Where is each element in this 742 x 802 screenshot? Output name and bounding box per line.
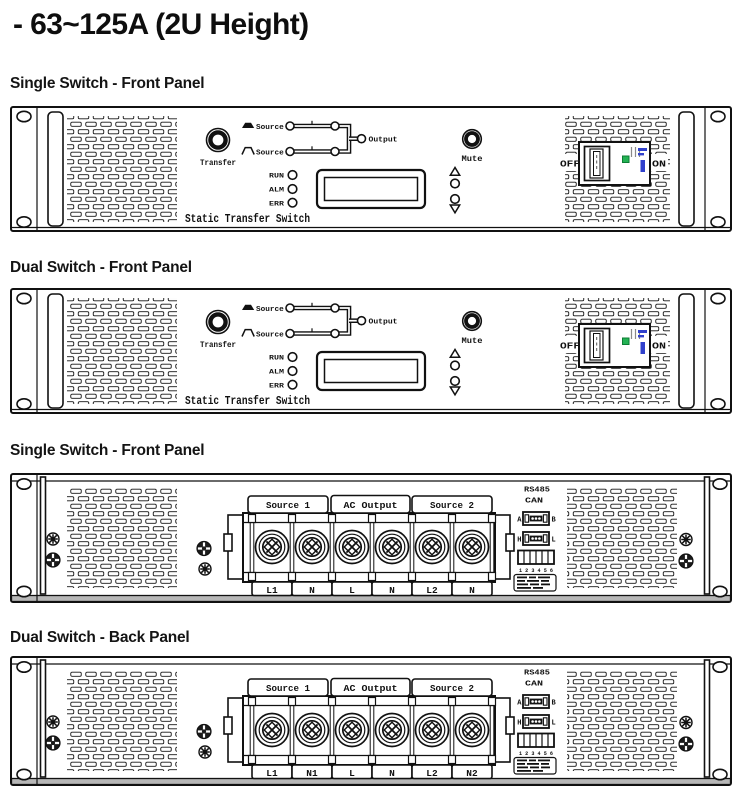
ear-hole (17, 662, 31, 672)
on-label: ON (652, 160, 666, 170)
mount-notch (224, 717, 232, 734)
mute-label: Mute (462, 337, 483, 346)
vent-grille-left (67, 116, 177, 222)
terminal-screw[interactable] (416, 714, 449, 747)
handle-bar-left (48, 294, 63, 408)
port-l-label: L (552, 720, 556, 728)
breaker-switch[interactable] (579, 324, 650, 367)
case-screw (46, 736, 60, 750)
edge-strip-right (705, 660, 710, 777)
handle-bar-right (679, 112, 694, 226)
err-led-label: ERR (269, 382, 285, 390)
run-led-label: RUN (269, 173, 284, 181)
rs485-connector[interactable] (523, 512, 549, 525)
ear-hole (17, 586, 31, 596)
bottom-rail (12, 779, 731, 785)
ear-hole (713, 769, 727, 779)
breaker-blue-bar (641, 160, 646, 172)
ear-hole (713, 662, 727, 672)
group-label: Source 2 (430, 500, 474, 511)
case-screw (197, 725, 211, 739)
can-connector[interactable] (523, 532, 549, 545)
dip-numbers: 1 2 3 4 5 6 (519, 567, 553, 574)
rs485-connector[interactable] (523, 695, 549, 708)
group-label: Source 1 (266, 500, 310, 511)
breaker-blue-mark (638, 153, 644, 155)
dip-legend (514, 575, 556, 592)
dip-numbers: 1 2 3 4 5 6 (519, 750, 553, 757)
ear-hole (713, 586, 727, 596)
ear-hole (17, 293, 31, 303)
terminal-label: N (389, 768, 395, 779)
dip-switch[interactable] (518, 551, 554, 565)
case-screw (680, 534, 692, 546)
terminal-screw[interactable] (336, 531, 369, 564)
vent-grille-left (67, 488, 177, 588)
vent-grille-right (567, 671, 677, 771)
ear-hole (711, 399, 725, 409)
panel-single-front: Transfer Source 1 Source 2 Output RUN AL… (10, 106, 732, 232)
can-label: CAN (525, 498, 543, 506)
port-h-label: H (517, 537, 521, 545)
section-label-dual-back: Dual Switch - Back Panel (10, 629, 190, 647)
group-label: AC Output (344, 500, 398, 511)
status-leds: RUN ALM ERR (269, 171, 297, 209)
edge-strip-right (705, 477, 710, 594)
case-screw (199, 563, 211, 575)
can-label: CAN (525, 681, 543, 689)
brand-label: Static Transfer Switch (185, 213, 310, 226)
terminal-screw[interactable] (456, 531, 489, 564)
terminal-screw[interactable] (456, 714, 489, 747)
alm-led (288, 367, 297, 376)
case-screw (679, 554, 693, 568)
run-led (288, 171, 297, 180)
breaker-green-indicator (623, 156, 630, 163)
breaker-blue-mark (638, 335, 644, 337)
group-label: Source 2 (430, 683, 474, 694)
case-screw (197, 542, 211, 556)
on-label: ON (652, 342, 666, 352)
alm-led-label: ALM (269, 369, 284, 377)
rs485-label: RS485 (524, 487, 551, 495)
section-label-single-back: Single Switch - Front Panel (10, 442, 204, 460)
terminal-screw[interactable] (336, 714, 369, 747)
breaker-green-indicator (623, 338, 630, 345)
terminal-label: N (389, 585, 395, 596)
group-label: Source 1 (266, 683, 310, 694)
ear-hole (711, 293, 725, 303)
bottom-rail (12, 596, 731, 602)
handle-bar-right (679, 294, 694, 408)
terminal-label: L1 (266, 585, 278, 596)
ear-hole (17, 479, 31, 489)
can-connector[interactable] (523, 715, 549, 728)
err-led-label: ERR (269, 200, 285, 208)
terminal-screw[interactable] (256, 714, 289, 747)
transfer-button[interactable] (207, 129, 230, 152)
vent-grille-left (67, 298, 177, 404)
err-led (288, 380, 297, 389)
mount-notch (506, 534, 514, 551)
terminal-block: Source 1 AC Output Source 2 L1 N L N L2 … (224, 496, 514, 596)
terminal-screw[interactable] (256, 531, 289, 564)
transfer-label: Transfer (200, 341, 236, 350)
run-led-label: RUN (269, 355, 284, 363)
dip-legend (514, 758, 556, 775)
round-button (451, 195, 460, 204)
terminal-label: N1 (306, 768, 318, 779)
terminal-screw[interactable] (376, 531, 409, 564)
ear-hole (17, 399, 31, 409)
terminal-label: N2 (466, 768, 478, 779)
mute-button[interactable] (463, 130, 482, 149)
terminal-labels: L1 N1 L N L2 N2 (252, 765, 492, 779)
section-label-dual-front: Dual Switch - Front Panel (10, 259, 192, 277)
rs485-label: RS485 (524, 670, 551, 678)
case-screw (46, 553, 60, 567)
terminal-screw[interactable] (376, 714, 409, 747)
dip-switch[interactable] (518, 734, 554, 748)
terminal-labels: L1 N L N L2 N (252, 582, 492, 596)
breaker-switch[interactable] (579, 142, 650, 185)
mute-label: Mute (462, 155, 483, 164)
terminal-label: L2 (426, 768, 438, 779)
mount-notch (506, 717, 514, 734)
off-label: OFF (560, 342, 580, 352)
terminal-screw[interactable] (296, 531, 329, 564)
ear-hole (17, 111, 31, 121)
terminal-label: L1 (266, 768, 278, 779)
ear-hole (17, 217, 31, 227)
terminal-label: N (309, 585, 315, 596)
output-label: Output (369, 319, 398, 327)
transfer-button[interactable] (207, 311, 230, 334)
terminal-screw[interactable] (416, 531, 449, 564)
vent-grille-left (67, 671, 177, 771)
terminal-label: N (469, 585, 475, 596)
run-led (288, 353, 297, 362)
breaker-blue-mark (638, 330, 647, 333)
round-button (451, 377, 460, 386)
ear-hole (711, 111, 725, 121)
alm-led (288, 185, 297, 194)
section-label-single-front: Single Switch - Front Panel (10, 75, 204, 93)
off-label: OFF (560, 160, 580, 170)
case-screw (199, 746, 211, 758)
edge-strip-left (41, 660, 46, 777)
lcd-screen (325, 178, 418, 201)
group-label: AC Output (344, 683, 398, 694)
panel-dual-front: Transfer Source 1 Source 2 Output RUN AL… (10, 288, 732, 414)
case-screw (680, 717, 692, 729)
terminal-label: L (349, 768, 355, 779)
breaker-blue-mark (638, 148, 647, 151)
terminal-label: L (349, 585, 355, 596)
round-button (451, 361, 460, 370)
ear-hole (711, 217, 725, 227)
case-screw (47, 716, 59, 728)
status-leds: RUN ALM ERR (269, 353, 297, 391)
page-title: - 63~125A (2U Height) (13, 8, 309, 42)
terminal-block: Source 1 AC Output Source 2 L1 N1 L N L2… (224, 679, 514, 779)
handle-bar-left (48, 112, 63, 226)
edge-strip-left (41, 477, 46, 594)
ear-hole (713, 479, 727, 489)
brand-label: Static Transfer Switch (185, 395, 310, 408)
panel-single-back: Source 1 AC Output Source 2 L1 N L N L2 … (10, 473, 732, 603)
case-screw (47, 533, 59, 545)
mute-button[interactable] (463, 312, 482, 331)
vent-grille-right (567, 488, 677, 588)
breaker-blue-bar (641, 342, 646, 354)
output-label: Output (369, 137, 398, 145)
err-led (288, 198, 297, 207)
port-h-label: H (517, 720, 521, 728)
transfer-label: Transfer (200, 159, 236, 168)
port-l-label: L (552, 537, 556, 545)
ear-hole (17, 769, 31, 779)
panel-dual-back: Source 1 AC Output Source 2 L1 N1 L N L2… (10, 656, 732, 786)
terminal-screw[interactable] (296, 714, 329, 747)
round-button (451, 179, 460, 188)
mount-notch (224, 534, 232, 551)
alm-led-label: ALM (269, 187, 284, 195)
terminal-label: L2 (426, 585, 438, 596)
case-screw (679, 737, 693, 751)
lcd-screen (325, 360, 418, 383)
